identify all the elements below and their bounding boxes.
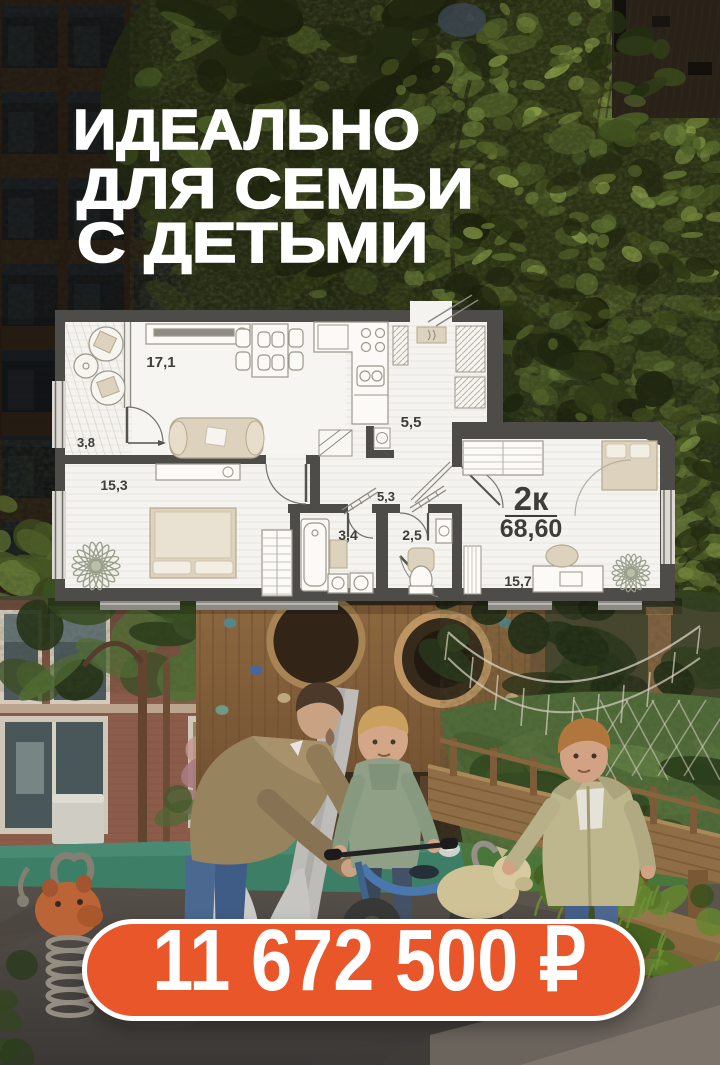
svg-text:3,8: 3,8: [77, 435, 95, 450]
svg-text:2,5: 2,5: [402, 527, 422, 543]
svg-text:5,3: 5,3: [377, 489, 395, 504]
svg-text:68,60: 68,60: [500, 515, 563, 543]
svg-text:17,1: 17,1: [146, 354, 175, 371]
svg-text:5,5: 5,5: [401, 414, 422, 431]
svg-text:15,3: 15,3: [100, 477, 127, 493]
svg-text:2к: 2к: [514, 480, 549, 517]
svg-text:3,4: 3,4: [338, 527, 358, 543]
svg-text:15,7: 15,7: [504, 573, 531, 589]
